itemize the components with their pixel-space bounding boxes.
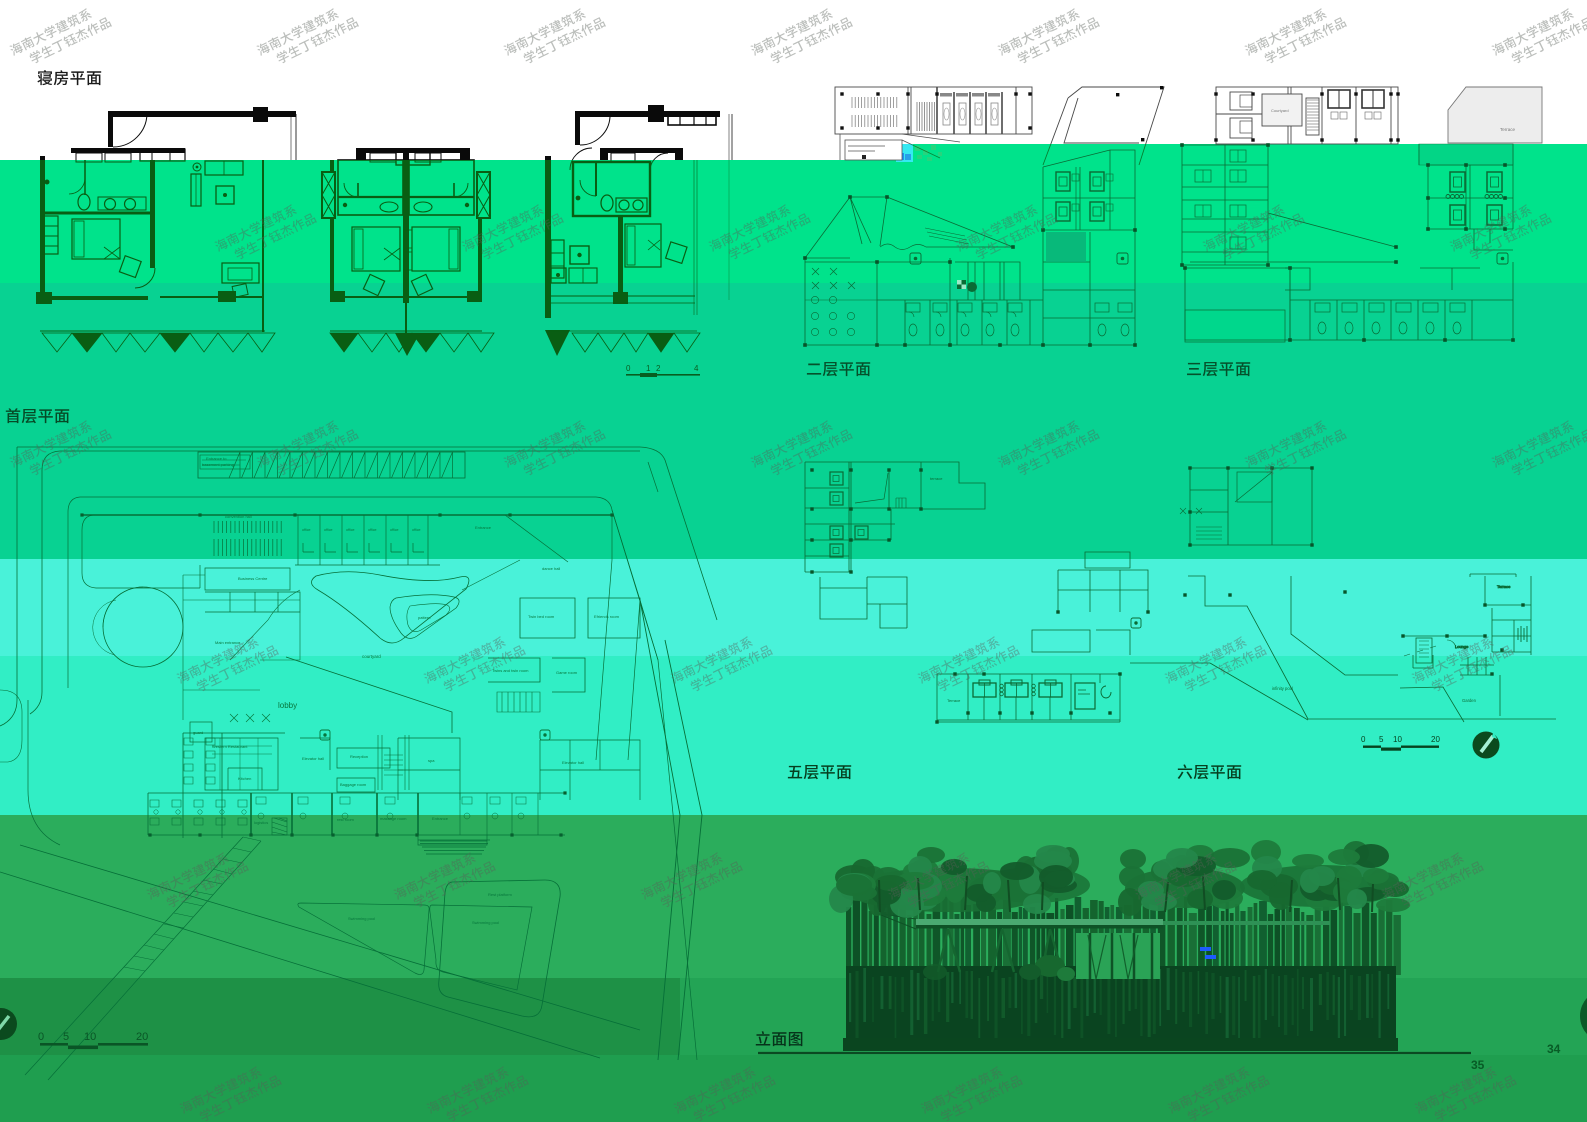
svg-text:Efriends room: Efriends room [594, 614, 620, 619]
svg-text:Terrace: Terrace [1500, 127, 1516, 132]
svg-text:Entrance: Entrance [475, 525, 492, 530]
svg-text:Business Centre: Business Centre [238, 576, 268, 581]
svg-text:2: 2 [656, 364, 661, 373]
svg-text:office: office [390, 528, 399, 532]
svg-text:10: 10 [84, 1031, 96, 1043]
svg-text:0: 0 [38, 1031, 44, 1043]
svg-text:Game room: Game room [556, 670, 578, 675]
svg-text:office: office [412, 528, 421, 532]
svg-text:spa: spa [428, 758, 435, 763]
svg-text:20: 20 [136, 1031, 148, 1043]
svg-text:massage room: massage room [380, 816, 407, 821]
svg-text:dance hall: dance hall [542, 566, 560, 571]
svg-text:Main entrance: Main entrance [215, 640, 241, 645]
svg-text:infinity pool: infinity pool [1272, 686, 1293, 691]
svg-text:office: office [302, 528, 311, 532]
svg-text:basement parking: basement parking [202, 462, 234, 467]
svg-text:Reception: Reception [350, 754, 368, 759]
svg-text:1: 1 [646, 364, 651, 373]
svg-text:5: 5 [1379, 735, 1384, 744]
svg-text:5: 5 [63, 1031, 69, 1043]
svg-text:pattern: pattern [418, 615, 430, 620]
svg-text:Garden: Garden [1462, 698, 1477, 703]
svg-text:35: 35 [1471, 1058, 1485, 1072]
svg-text:Kitchen: Kitchen [238, 776, 251, 781]
svg-text:office: office [346, 528, 355, 532]
svg-text:Elevator hall: Elevator hall [562, 760, 584, 765]
svg-text:rest room: rest room [337, 817, 355, 822]
svg-text:Entrance: Entrance [432, 816, 449, 821]
svg-text:Twins and twin room: Twins and twin room [492, 668, 529, 673]
svg-text:Twin bed room: Twin bed room [528, 614, 555, 619]
svg-text:Western Restaurant: Western Restaurant [212, 744, 248, 749]
svg-text:Lounge: Lounge [1455, 644, 1469, 649]
svg-text:office: office [368, 528, 377, 532]
svg-text:office: office [324, 528, 333, 532]
svg-text:34: 34 [1547, 1042, 1561, 1056]
svg-text:Baggage room: Baggage room [340, 782, 367, 787]
svg-text:convention hall: convention hall [225, 514, 252, 519]
svg-text:Entrance to: Entrance to [206, 456, 227, 461]
svg-text:Rest platform: Rest platform [488, 892, 512, 897]
svg-text:Elevator hall: Elevator hall [302, 756, 324, 761]
svg-text:10: 10 [1393, 735, 1402, 744]
svg-text:Courtyard: Courtyard [1271, 108, 1289, 113]
svg-text:guard: guard [193, 730, 203, 735]
svg-text:Swimming pool: Swimming pool [472, 920, 499, 925]
svg-text:terrace: terrace [930, 476, 943, 481]
svg-text:logistics: logistics [254, 820, 268, 825]
svg-text:4: 4 [694, 364, 699, 373]
svg-text:Terrace: Terrace [947, 698, 961, 703]
svg-text:courtyard: courtyard [362, 654, 381, 659]
svg-text:20: 20 [1431, 735, 1440, 744]
svg-text:lobby: lobby [278, 701, 297, 710]
svg-text:0: 0 [1361, 735, 1366, 744]
svg-text:0: 0 [626, 364, 631, 373]
svg-text:Swimming pool: Swimming pool [348, 916, 375, 921]
svg-text:Terrace: Terrace [1497, 584, 1511, 589]
